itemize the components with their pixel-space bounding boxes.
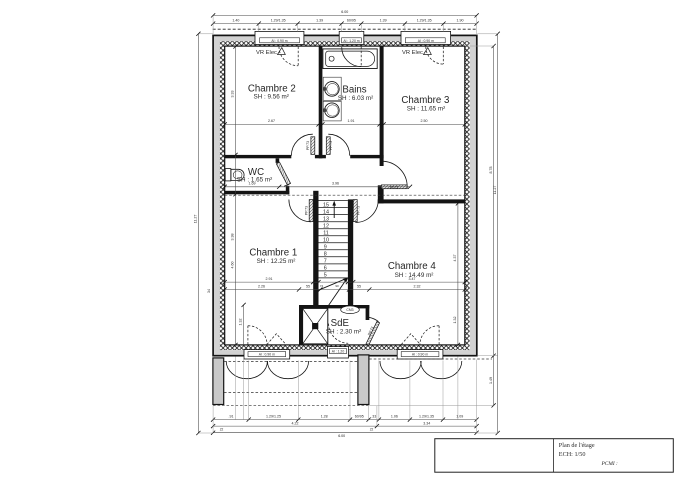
svg-text:74: 74 [320, 284, 324, 288]
svg-text:Bains: Bains [342, 85, 366, 96]
svg-text:1.29/1.35: 1.29/1.35 [271, 18, 286, 22]
svg-text:22: 22 [220, 428, 224, 432]
svg-text:3.33: 3.33 [231, 91, 235, 98]
svg-text:11: 11 [323, 230, 329, 236]
svg-text:CM3: CM3 [346, 308, 353, 312]
svg-text:1.28: 1.28 [321, 414, 328, 418]
svg-text:60/95: 60/95 [347, 18, 356, 22]
svg-text:Al : 1.20 m: Al : 1.20 m [343, 39, 359, 43]
svg-text:1.29/1.25: 1.29/1.25 [266, 414, 281, 418]
svg-text:.91: .91 [229, 414, 234, 418]
svg-text:PP.73: PP.73 [304, 206, 308, 215]
svg-text:Al : 0.90 m: Al : 0.90 m [259, 353, 275, 357]
svg-text:7: 7 [324, 259, 327, 265]
svg-text:1.39: 1.39 [380, 18, 387, 22]
svg-text:Al : 0.90 m: Al : 0.90 m [418, 39, 434, 43]
svg-text:6.00: 6.00 [338, 434, 345, 438]
svg-text:6.00: 6.00 [341, 10, 348, 14]
svg-text:Al : 0.90 m: Al : 0.90 m [271, 39, 287, 43]
svg-text:8.78: 8.78 [489, 167, 493, 174]
svg-text:.33: .33 [371, 414, 376, 418]
svg-text:12: 12 [323, 223, 329, 229]
svg-text:1.32: 1.32 [239, 319, 243, 326]
svg-text:Al : 0.90 m: Al : 0.90 m [412, 353, 428, 357]
svg-text:PP.73: PP.73 [390, 185, 399, 189]
svg-text:1.29/1.35: 1.29/1.35 [417, 18, 432, 22]
svg-text:90: 90 [335, 284, 339, 288]
svg-text:Plan de l'étage: Plan de l'étage [559, 442, 595, 449]
svg-text:1.09: 1.09 [456, 414, 463, 418]
svg-text:34: 34 [207, 289, 211, 293]
svg-text:4.60: 4.60 [231, 262, 235, 269]
svg-text:SH : 14.49 m²: SH : 14.49 m² [395, 272, 434, 279]
svg-text:PP.73: PP.73 [356, 206, 360, 215]
svg-text:14: 14 [323, 209, 329, 215]
svg-text:11.27: 11.27 [493, 186, 497, 195]
svg-text:6: 6 [324, 266, 327, 272]
svg-text:4.22: 4.22 [292, 421, 299, 425]
svg-text:3.96: 3.96 [332, 182, 339, 186]
svg-text:1.90: 1.90 [457, 18, 464, 22]
svg-text:SH : 12.25 m²: SH : 12.25 m² [257, 258, 296, 265]
svg-text:1.29/1.35: 1.29/1.35 [419, 414, 434, 418]
svg-text:Chambre 4: Chambre 4 [388, 261, 437, 272]
svg-text:9: 9 [324, 245, 327, 251]
svg-text:PCMI :: PCMI : [601, 461, 619, 467]
svg-text:2.91: 2.91 [266, 277, 273, 281]
svg-text:VR Elec: VR Elec [402, 50, 423, 56]
svg-text:1.91: 1.91 [348, 119, 355, 123]
svg-text:11.27: 11.27 [194, 215, 198, 224]
svg-text:4.37: 4.37 [453, 255, 457, 262]
svg-text:10: 10 [323, 237, 329, 243]
svg-text:3.38: 3.38 [231, 234, 235, 241]
svg-text:2.32: 2.32 [414, 284, 421, 288]
svg-text:2.50: 2.50 [421, 119, 428, 123]
svg-text:5: 5 [324, 273, 327, 279]
svg-text:SH : 11.65 m²: SH : 11.65 m² [407, 105, 445, 112]
svg-text:1.40: 1.40 [232, 18, 239, 22]
svg-text:PP.73: PP.73 [306, 141, 310, 150]
svg-text:PP.73: PP.73 [329, 141, 333, 150]
svg-text:2.26: 2.26 [258, 284, 265, 288]
svg-text:1.39: 1.39 [316, 18, 323, 22]
svg-text:SH : 2.30 m²: SH : 2.30 m² [326, 329, 361, 336]
svg-text:8: 8 [324, 252, 327, 258]
svg-text:1.32: 1.32 [453, 317, 457, 324]
svg-text:1.49: 1.49 [489, 377, 493, 384]
svg-text:60/95: 60/95 [355, 414, 364, 418]
svg-text:SH : 9.56 m²: SH : 9.56 m² [254, 93, 289, 100]
svg-text:1.06: 1.06 [391, 414, 398, 418]
svg-text:SH : 6.03 m²: SH : 6.03 m² [338, 95, 373, 102]
svg-text:ECH: 1/50: ECH: 1/50 [559, 451, 586, 458]
svg-text:Chambre 3: Chambre 3 [401, 95, 449, 106]
svg-text:Al : 1.20: Al : 1.20 [332, 350, 345, 354]
svg-text:3.34: 3.34 [423, 421, 430, 425]
svg-text:22: 22 [370, 428, 374, 432]
svg-text:SdE: SdE [331, 318, 350, 329]
svg-text:2.67: 2.67 [268, 119, 275, 123]
svg-text:VR Elec: VR Elec [256, 50, 277, 56]
svg-text:SH : 1.65 m²: SH : 1.65 m² [237, 177, 272, 184]
svg-text:15: 15 [323, 202, 329, 208]
svg-text:Chambre 1: Chambre 1 [249, 248, 297, 259]
svg-text:55: 55 [306, 284, 310, 288]
svg-text:13: 13 [323, 216, 329, 222]
svg-text:55: 55 [357, 284, 361, 288]
